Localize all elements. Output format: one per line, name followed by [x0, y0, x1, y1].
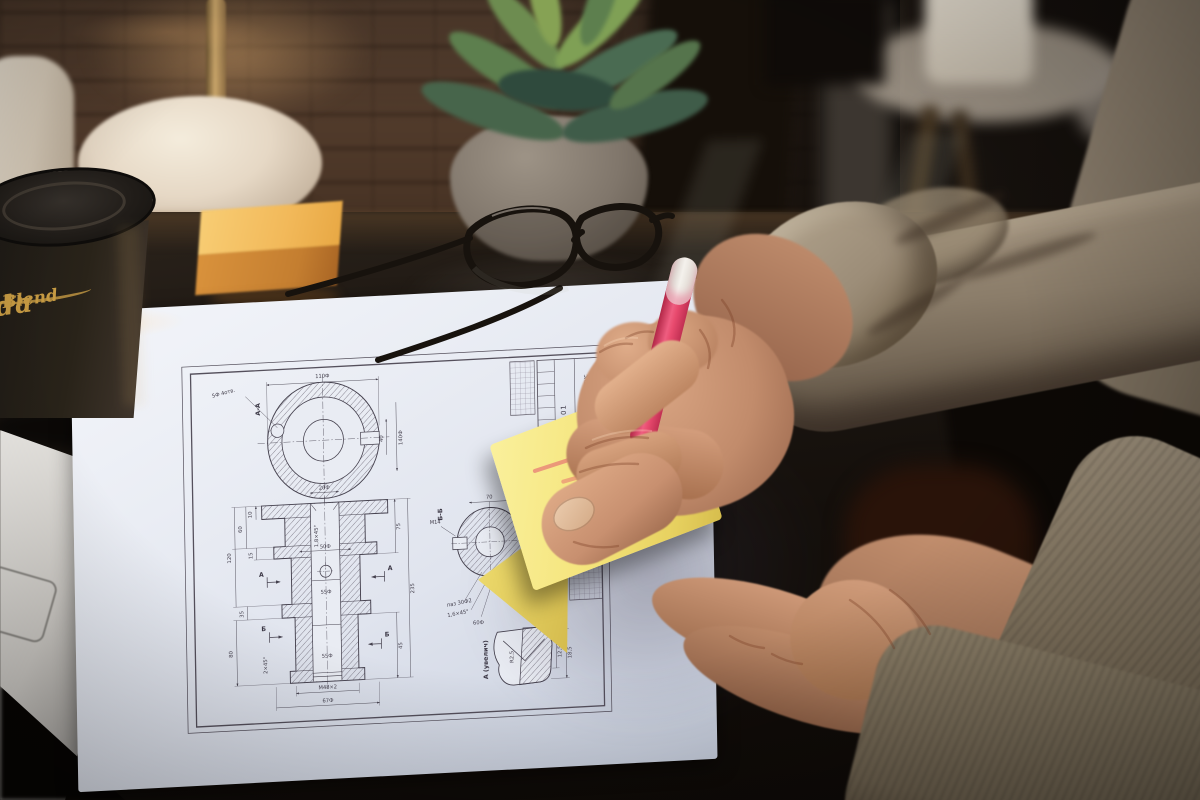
dim-l10: 10	[248, 511, 254, 518]
dim-l120: 120	[227, 553, 233, 564]
main-section-view: 20Ф 1,8×45° 50Ф 55Ф 55Ф М48×2 67Ф 10 60 …	[226, 481, 418, 714]
photo-desk-scene: 110Ф 5Ф 4отв. 40 140Ф А-А	[0, 0, 1200, 800]
dim-base-d: 67Ф	[322, 698, 334, 705]
dim-low-d: 55Ф	[322, 653, 334, 660]
coffee-cup: da The Blend	[0, 166, 165, 418]
dim-flange-d1: 40	[379, 435, 385, 442]
dim-l35: 35	[239, 611, 245, 618]
dim-thread: М48×2	[318, 684, 337, 691]
marker-a-right: А	[388, 565, 393, 572]
background-dark-object	[765, 0, 885, 85]
dim-chamfer-bot: 2×45°	[263, 656, 269, 674]
dim-flange-holes: 5Ф 4отв.	[212, 388, 236, 400]
marker-b-right: Б	[385, 631, 390, 638]
flange-view: 110Ф 5Ф 4отв. 40 140Ф А-А	[211, 369, 405, 514]
marker-a-left: А	[259, 572, 264, 579]
dim-bb-thread: М14	[430, 519, 442, 526]
dim-flange-d2: 140Ф	[398, 430, 404, 446]
dim-mid-d1: 50Ф	[320, 544, 332, 551]
dim-top-d: 20Ф	[319, 485, 331, 492]
dim-len-total: 235	[410, 583, 416, 594]
marker-b-left: Б	[261, 626, 266, 633]
laptop-trackpad	[0, 559, 59, 644]
dim-len-bottom: 45	[398, 642, 404, 649]
dim-l80: 80	[229, 651, 235, 658]
dim-l60: 60	[238, 526, 244, 533]
dim-flange-od: 110Ф	[315, 373, 330, 380]
background-pitcher	[925, 0, 1033, 84]
dim-mid-d2: 55Ф	[321, 589, 333, 596]
dim-l15: 15	[248, 552, 254, 559]
dim-bb-chamfer: 1,6×45°	[447, 609, 470, 619]
orange-sticky-note-stack	[195, 201, 343, 296]
dim-len-top: 75	[396, 523, 402, 530]
section-aa-label: А-А	[255, 403, 262, 416]
